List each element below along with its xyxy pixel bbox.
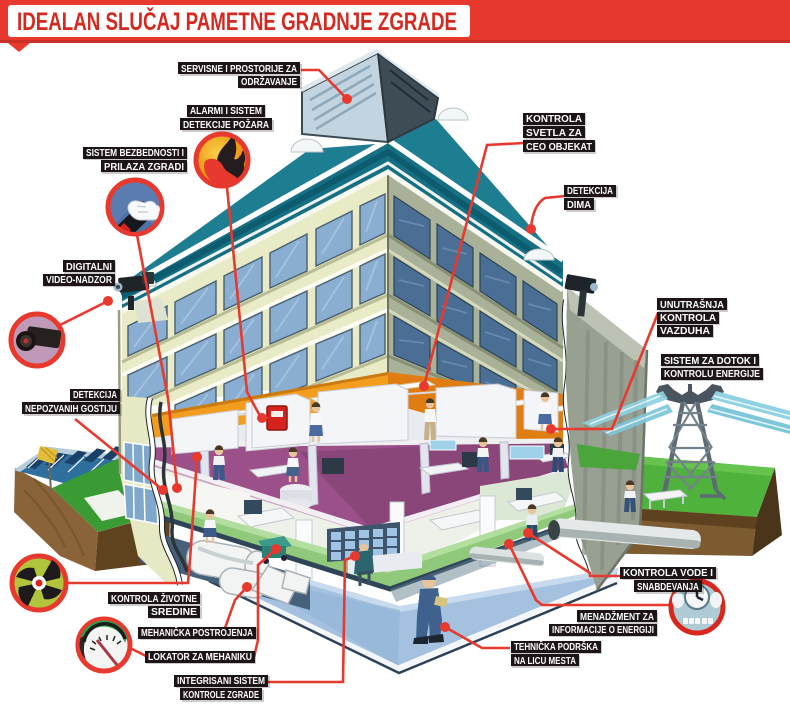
svg-text:LOKATOR ZA MEHANIKU: LOKATOR ZA MEHANIKU: [148, 651, 252, 663]
svg-text:VAZDUHA: VAZDUHA: [660, 325, 710, 337]
svg-text:NA LICU MESTA: NA LICU MESTA: [514, 655, 576, 667]
svg-text:KONTROLE ZGRADE: KONTROLE ZGRADE: [183, 689, 259, 701]
svg-text:KONTROLA: KONTROLA: [660, 312, 716, 324]
svg-text:SREDINE: SREDINE: [151, 606, 197, 618]
svg-text:KONTROLA VODE I: KONTROLA VODE I: [623, 567, 713, 579]
svg-text:SISTEM BEZBEDNOSTI I: SISTEM BEZBEDNOSTI I: [86, 147, 184, 159]
svg-text:ALARMI I SISTEM: ALARMI I SISTEM: [190, 105, 262, 117]
svg-text:CEO OBJEKAT: CEO OBJEKAT: [526, 141, 593, 153]
svg-text:MENADŽMENT ZA: MENADŽMENT ZA: [580, 610, 654, 623]
svg-text:IDEALAN SLUČAJ PAMETNE GRADNJE: IDEALAN SLUČAJ PAMETNE GRADNJE ZGRADE: [17, 6, 457, 36]
svg-text:DETEKCIJE POŽARA: DETEKCIJE POŽARA: [183, 118, 269, 131]
svg-text:NEPOZVANIH GOSTIJU: NEPOZVANIH GOSTIJU: [25, 403, 117, 415]
svg-text:TEHNIČKA PODRŠKA: TEHNIČKA PODRŠKA: [514, 640, 598, 653]
svg-text:KONTROLA ŽIVOTNE: KONTROLA ŽIVOTNE: [111, 592, 197, 605]
svg-text:PRILAZA ZGRADI: PRILAZA ZGRADI: [104, 161, 184, 173]
svg-text:INTEGRISANI SISTEM: INTEGRISANI SISTEM: [177, 675, 265, 687]
svg-text:DIGITALNI: DIGITALNI: [66, 261, 112, 273]
svg-text:ODRŽAVANJE: ODRŽAVANJE: [241, 75, 297, 88]
svg-text:KONTROLA: KONTROLA: [526, 113, 582, 125]
svg-text:KONTROLU ENERGIJE: KONTROLU ENERGIJE: [664, 368, 760, 380]
svg-text:SISTEM ZA DOTOK I: SISTEM ZA DOTOK I: [664, 355, 756, 367]
svg-text:INFORMACIJE O ENERGIJI: INFORMACIJE O ENERGIJI: [552, 624, 654, 636]
svg-text:DETEKCIJA: DETEKCIJA: [73, 389, 117, 401]
svg-text:DIMA: DIMA: [567, 199, 591, 211]
svg-text:MEHANIČKA POSTROJENJA: MEHANIČKA POSTROJENJA: [141, 626, 253, 639]
svg-text:UNUTRAŠNJA: UNUTRAŠNJA: [660, 298, 724, 311]
svg-text:DETEKCIJA: DETEKCIJA: [567, 185, 613, 197]
svg-text:SERVISNE I PROSTORIJE ZA: SERVISNE I PROSTORIJE ZA: [181, 63, 297, 75]
svg-text:VIDEO-NADZOR: VIDEO-NADZOR: [46, 274, 112, 286]
svg-text:SNABDEVANJA: SNABDEVANJA: [637, 581, 699, 593]
svg-text:SVETLA ZA: SVETLA ZA: [526, 127, 582, 139]
